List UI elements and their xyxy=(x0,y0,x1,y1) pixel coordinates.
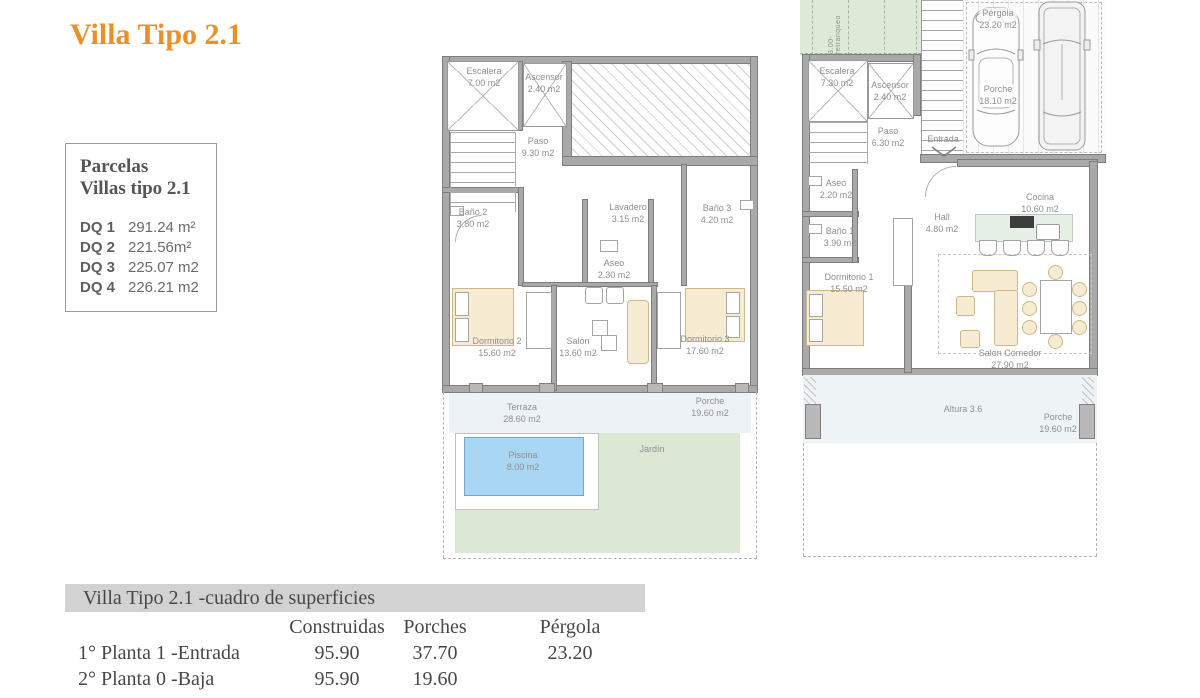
pillow xyxy=(455,292,469,316)
column-header-construidas: Construidas xyxy=(289,616,385,639)
sofa xyxy=(972,270,1018,292)
room-label-ascensor: Ascensor2.40 m2 xyxy=(525,72,563,95)
dining-chair xyxy=(1048,334,1063,349)
room-label-porche-trasero: Porche19.60 m2 xyxy=(1039,412,1077,435)
pouf xyxy=(960,330,980,348)
room-label-aseo: Aseo2.30 m2 xyxy=(598,258,631,281)
surface-table-header: Villa Tipo 2.1 -cuadro de superficies xyxy=(65,584,645,612)
entry-door-arc xyxy=(925,166,956,197)
room-label-entrada: Entrada xyxy=(927,134,959,146)
wardrobe xyxy=(893,218,913,286)
room-label-bano2: Baño 23.80 m2 xyxy=(457,207,490,230)
room-label-ascensor: Ascensor2.40 m2 xyxy=(871,80,909,103)
room-label-porche-garaje: Porche18.10 m2 xyxy=(979,84,1017,107)
setback-label: 3.00-retranqueo xyxy=(828,2,842,54)
parcelas-heading: Parcelas xyxy=(80,156,216,178)
setback-zone xyxy=(800,0,921,55)
room-label-bano1: Baño 13.90 m2 xyxy=(824,226,857,249)
sink xyxy=(808,224,822,234)
armchair xyxy=(585,287,603,304)
room-label-lavadero: Lavadero3.15 m2 xyxy=(609,202,647,225)
table-cell: 23.20 xyxy=(548,642,593,665)
dining-chair xyxy=(1072,301,1087,316)
column-header-porches: Porches xyxy=(403,616,466,639)
pillow xyxy=(455,318,469,342)
coffee-table xyxy=(592,320,608,336)
pillow xyxy=(809,319,823,342)
sink xyxy=(740,200,754,210)
wardrobe xyxy=(657,292,681,349)
room-label-altura: Altura 3.6 xyxy=(944,404,983,416)
pillow xyxy=(809,294,823,317)
room-label-hall: Hall4.80 m2 xyxy=(926,212,959,235)
coffee-table xyxy=(601,335,617,351)
page-title: Villa Tipo 2.1 xyxy=(70,18,242,52)
parcelas-box: Parcelas Villas tipo 2.1 DQ 1291.24 m² D… xyxy=(65,143,217,312)
entrada-arrow-icon xyxy=(931,146,957,158)
table-row-label: 1° Planta 1 -Entrada xyxy=(78,642,240,665)
pillow xyxy=(726,292,740,314)
table-row-label: 2° Planta 0 -Baja xyxy=(78,668,214,691)
room-label-piscina: Piscina8.00 m2 xyxy=(507,450,540,473)
washer xyxy=(600,240,618,252)
dining-chair xyxy=(1048,265,1063,280)
room-label-dormitorio1: Dormitorio 115.50 m2 xyxy=(824,272,873,295)
table-cell: 19.60 xyxy=(413,668,458,691)
room-label-salon: Salón13.60 m2 xyxy=(559,336,597,359)
table-cell: 95.90 xyxy=(315,668,360,691)
room-label-salon-comedor: Salon Comedor27.90 m2 xyxy=(979,348,1042,371)
room-label-dormitorio2: Dormitorio 215.60 m2 xyxy=(472,336,521,359)
car-icon xyxy=(1033,0,1091,152)
dining-chair xyxy=(1022,320,1037,335)
room-label-dormitorio3: Dormitorio 317.60 m2 xyxy=(680,334,729,357)
column-header-pergola: Pérgola xyxy=(540,616,601,639)
room-label-cocina: Cocina10.60 m2 xyxy=(1021,192,1059,215)
exterior-stairs xyxy=(921,0,965,156)
oven xyxy=(1036,224,1060,240)
parcela-row: DQ 1291.24 m² xyxy=(80,218,216,238)
stair-treads xyxy=(450,132,516,212)
room-label-pergola: Pérgola23.20 m2 xyxy=(979,8,1017,31)
room-label-aseo: Aseo2.20 m2 xyxy=(820,178,853,201)
parcela-row: DQ 4226.21 m2 xyxy=(80,278,216,298)
plan-sheet: Villa Tipo 2.1 Parcelas Villas tipo 2.1 … xyxy=(0,0,1200,698)
room-label-jardin: Jardín xyxy=(639,444,664,456)
room-label-escalera: Escalera7.30 m2 xyxy=(819,66,854,89)
table-cell: 37.70 xyxy=(413,642,458,665)
armchair xyxy=(956,296,975,316)
table-cell: 95.90 xyxy=(315,642,360,665)
room-label-porche: Porche19.60 m2 xyxy=(691,396,729,419)
sofa xyxy=(994,290,1018,346)
parcela-row: DQ 3225.07 m2 xyxy=(80,258,216,278)
stair-treads xyxy=(808,122,868,164)
dining-table xyxy=(1040,280,1072,334)
sofa xyxy=(627,300,649,364)
dining-chair xyxy=(1022,301,1037,316)
dining-chair xyxy=(1072,282,1087,297)
wardrobe xyxy=(526,292,552,349)
parcela-row: DQ 2221.56m² xyxy=(80,238,216,258)
room-label-terraza: Terraza28.60 m2 xyxy=(503,402,541,425)
room-label-bano3: Baño 34.20 m2 xyxy=(701,203,734,226)
room-label-escalera: Escalera7.00 m2 xyxy=(466,66,501,89)
dining-chair xyxy=(1072,320,1087,335)
roof-hatch xyxy=(571,62,752,158)
dining-chair xyxy=(1022,282,1037,297)
parcelas-subheading: Villas tipo 2.1 xyxy=(80,178,216,200)
cooktop xyxy=(1010,216,1034,228)
armchair xyxy=(606,287,624,304)
room-label-paso: Paso9.30 m2 xyxy=(522,136,555,159)
room-label-paso: Paso6.30 m2 xyxy=(872,126,905,149)
